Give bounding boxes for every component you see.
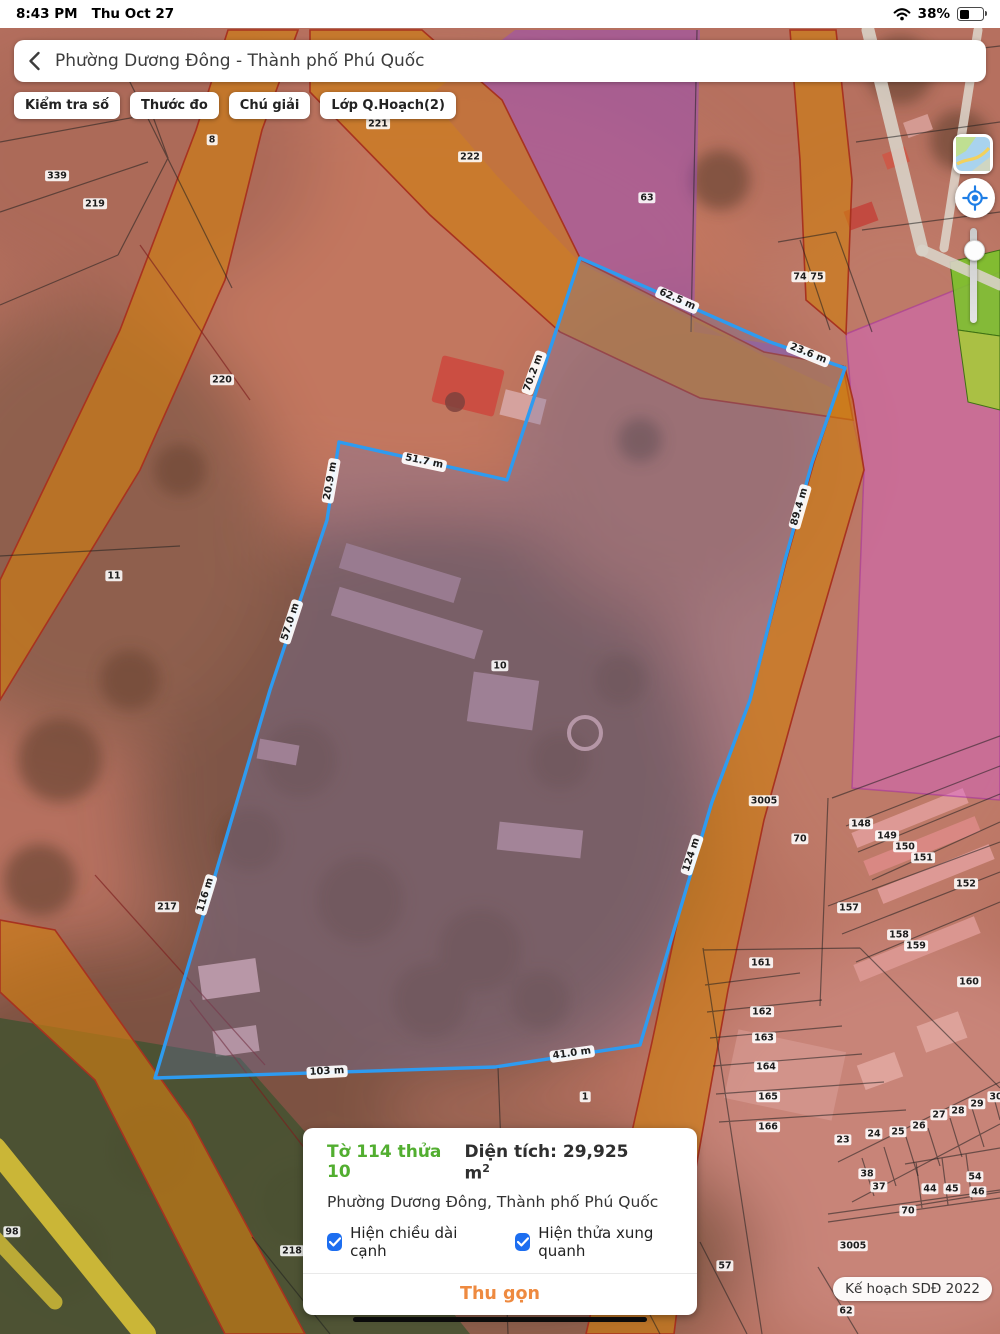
locate-crosshair-icon: [962, 185, 988, 211]
plan-year-badge[interactable]: Kế hoạch SDĐ 2022: [833, 1277, 992, 1301]
collapse-button[interactable]: Thu gọn: [303, 1273, 697, 1315]
zoom-slider-thumb[interactable]: [964, 240, 985, 261]
back-chevron-icon[interactable]: [28, 51, 41, 71]
map-type-icon: [956, 137, 990, 171]
location-title: Phường Dương Đông - Thành phố Phú Quốc: [55, 51, 425, 71]
parcel-area: Diện tích: 29,925 m2: [465, 1142, 679, 1184]
basemap-toggle-button[interactable]: [953, 134, 993, 174]
search-bar[interactable]: Phường Dương Đông - Thành phố Phú Quốc: [14, 40, 986, 82]
battery-icon: [957, 7, 984, 21]
date: Thu Oct 27: [92, 6, 175, 22]
measure-button[interactable]: Thước đo: [130, 92, 219, 119]
wifi-icon: [893, 7, 911, 21]
status-bar: 8:43 PM Thu Oct 27 38%: [0, 0, 1000, 28]
toolbar: Kiểm tra số Thước đo Chú giải Lớp Q.Hoạc…: [14, 92, 456, 119]
checkbox-checked-icon[interactable]: [327, 1233, 342, 1251]
clock: 8:43 PM: [16, 6, 78, 22]
parcel-address: Phường Dương Đông, Thành phố Phú Quốc: [327, 1193, 679, 1211]
check-number-button[interactable]: Kiểm tra số: [14, 92, 120, 119]
show-adjacent-parcels-checkbox[interactable]: Hiện thửa xung quanh: [515, 1224, 679, 1260]
legend-button[interactable]: Chú giải: [229, 92, 311, 119]
planning-layer-button[interactable]: Lớp Q.Hoạch(2): [320, 92, 456, 119]
battery-percent: 38%: [918, 6, 950, 22]
app-screen: 8339219221222637475220111021730057014814…: [0, 0, 1000, 1334]
show-edge-lengths-checkbox[interactable]: Hiện chiều dài cạnh: [327, 1224, 475, 1260]
sheet-parcel-ref: Tờ 114 thửa 10: [327, 1142, 465, 1182]
parcel-info-panel: Tờ 114 thửa 10 Diện tích: 29,925 m2 Phườ…: [303, 1128, 697, 1315]
home-indicator[interactable]: [353, 1317, 647, 1322]
checkbox-checked-icon[interactable]: [515, 1233, 530, 1251]
my-location-button[interactable]: [955, 178, 995, 218]
